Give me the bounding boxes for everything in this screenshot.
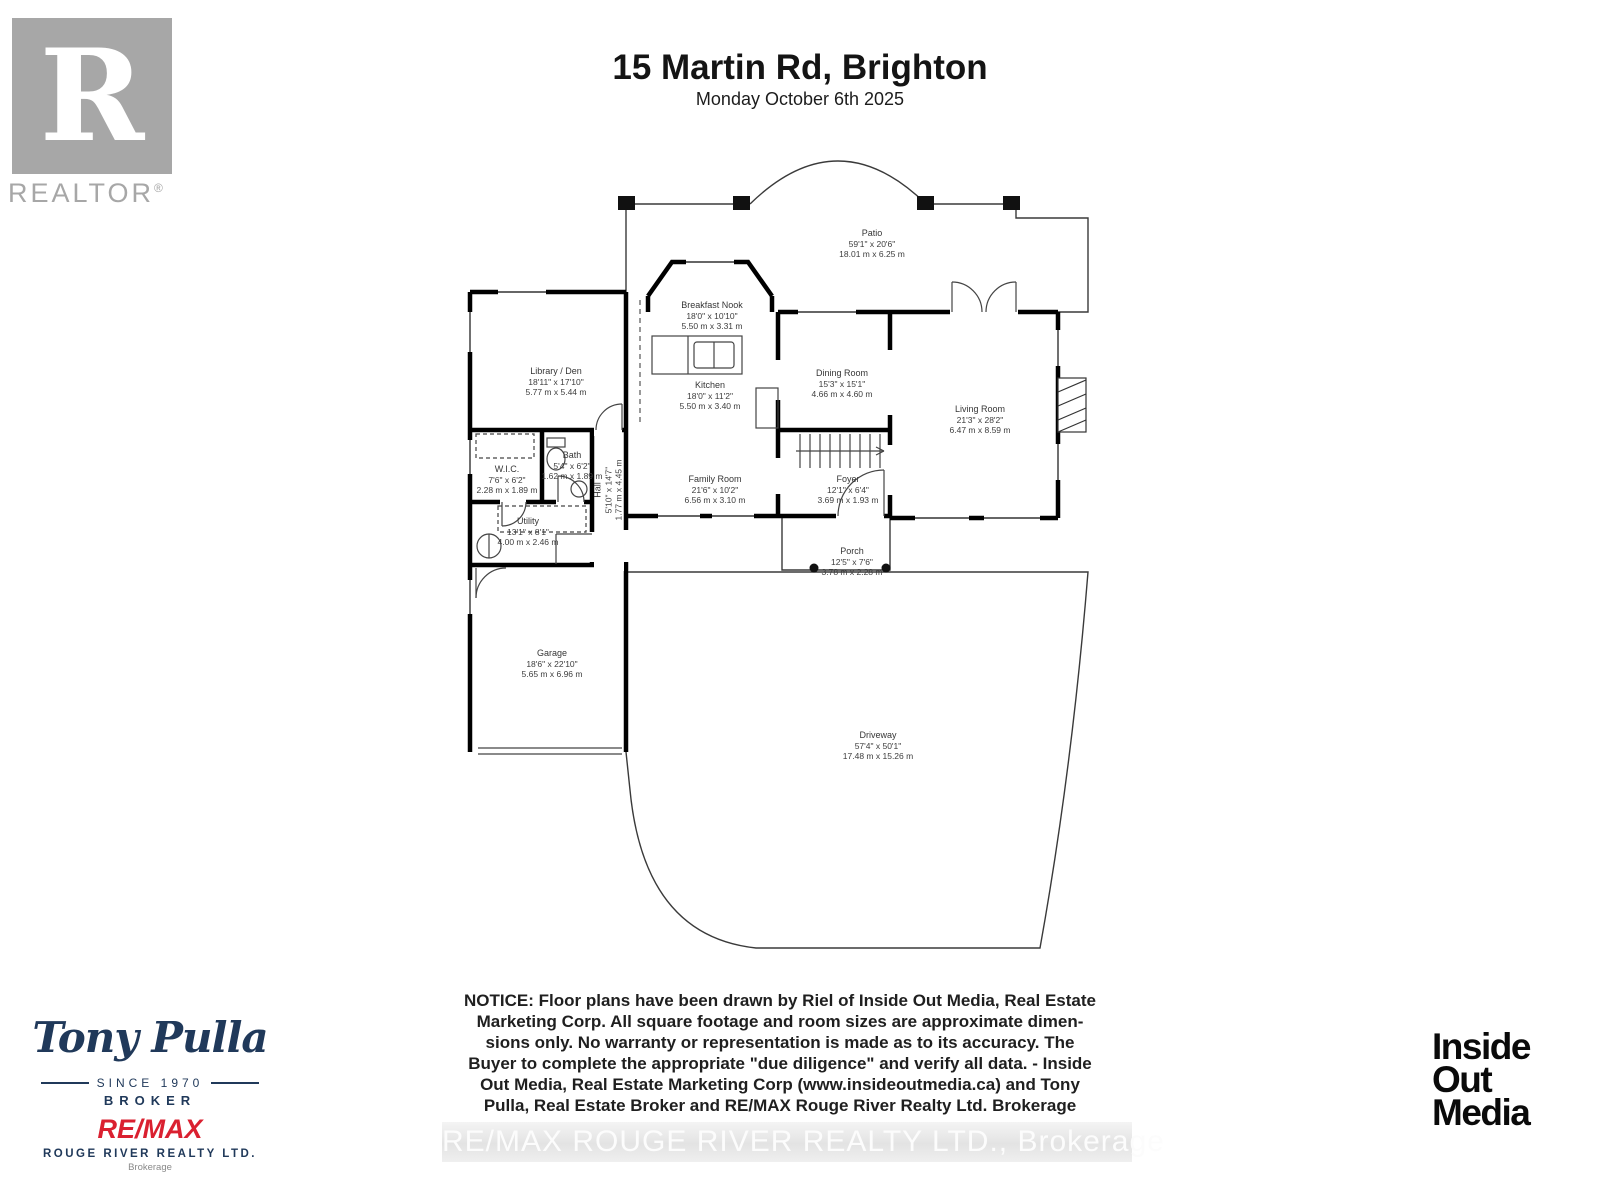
room-label-porch: Porch 12'5" x 7'6" 3.78 m x 2.28 m xyxy=(822,546,883,578)
fireplace xyxy=(1058,378,1086,432)
room-label-dining-room: Dining Room 15'3" x 15'1" 4.66 m x 4.60 … xyxy=(812,368,873,400)
room-label-family-room: Family Room 21'6" x 10'2" 6.56 m x 3.10 … xyxy=(685,474,746,506)
stairs xyxy=(796,434,884,468)
rule-right xyxy=(211,1082,259,1084)
brokerage-name: ROUGE RIVER REALTY LTD. xyxy=(0,1148,300,1160)
media-logo-line3: Media xyxy=(1432,1096,1530,1129)
room-label-library-den: Library / Den 18'11" x 17'10" 5.77 m x 5… xyxy=(526,366,587,398)
room-label-kitchen: Kitchen 18'0" x 11'2" 5.50 m x 3.40 m xyxy=(680,380,741,412)
since-label: SINCE 1970 xyxy=(97,1076,204,1090)
room-label-foyer: Foyer 12'1" x 6'4" 3.69 m x 1.93 m xyxy=(818,474,879,506)
brokerage-watermark: RE/MAX ROUGE RIVER REALTY LTD., Brokerag… xyxy=(442,1122,1132,1162)
room-label-patio: Patio 59'1" x 20'6" 18.01 m x 6.25 m xyxy=(839,228,905,260)
room-label-hall: Hall 5'10" x 14'7" 1.77 m x 4.45 m xyxy=(592,460,624,521)
agent-name: Tony Pulla xyxy=(0,1006,300,1070)
floor-plan-page: 15 Martin Rd, Brighton Monday October 6t… xyxy=(0,0,1600,1200)
broker-label: BROKER xyxy=(0,1093,300,1108)
brokerage-label: Brokerage xyxy=(0,1162,300,1173)
garage-door xyxy=(478,748,622,754)
patio-pillars xyxy=(618,196,1020,210)
room-label-breakfast-nook: Breakfast Nook 18'0" x 10'10" 5.50 m x 3… xyxy=(681,300,743,332)
door-swings xyxy=(476,282,1016,598)
agent-branding: Tony Pulla SINCE 1970 BROKER RE/MAX ROUG… xyxy=(0,1006,300,1173)
since-row: SINCE 1970 xyxy=(0,1076,300,1090)
room-label-driveway: Driveway 57'4" x 50'1" 17.48 m x 15.26 m xyxy=(843,730,913,762)
room-label-garage: Garage 18'6" x 22'10" 5.65 m x 6.96 m xyxy=(522,648,583,680)
room-label-wic: W.I.C. 7'6" x 6'2" 2.28 m x 1.89 m xyxy=(477,464,538,496)
room-label-living-room: Living Room 21'3" x 28'2" 6.47 m x 8.59 … xyxy=(950,404,1011,436)
remax-logo: RE/MAX xyxy=(0,1114,300,1145)
room-label-utility: Utility 13'1" x 8'1" 4.00 m x 2.46 m xyxy=(498,516,559,548)
rule-left xyxy=(41,1082,89,1084)
notice-text: NOTICE: Floor plans have been drawn by R… xyxy=(460,990,1100,1116)
inside-out-media-logo: Inside Out Media xyxy=(1432,1030,1530,1129)
